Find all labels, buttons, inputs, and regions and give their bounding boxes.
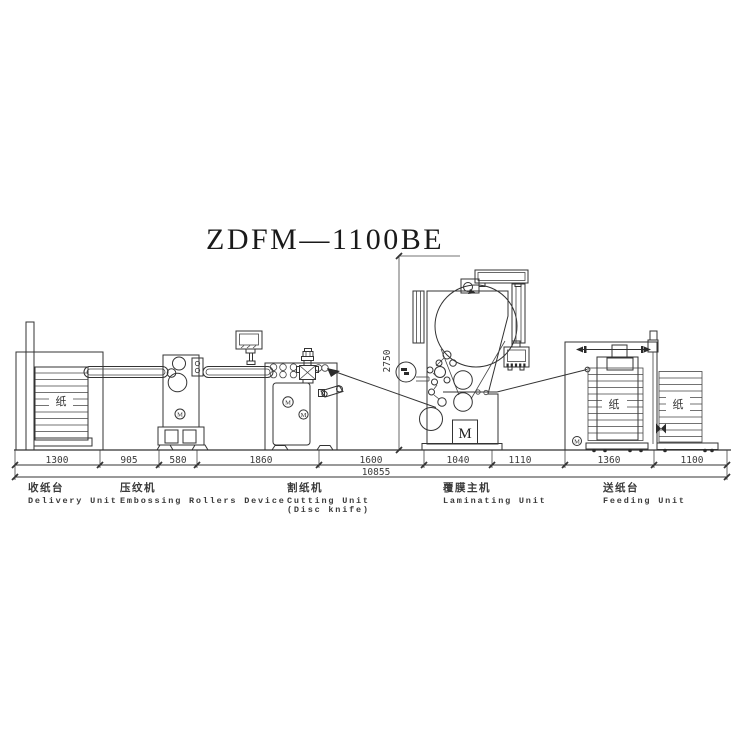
unit-labels: 收纸台 Delivery Unit 压纹机 Embossing Rollers …	[28, 481, 686, 515]
dim-cutting: 1860	[250, 455, 273, 466]
paper-label-feeder-1: 纸	[609, 398, 620, 411]
control-panel-2	[504, 347, 529, 370]
laminator-body	[427, 291, 508, 444]
sheet-path-lines	[333, 367, 590, 407]
monitor-1-screen	[240, 334, 259, 345]
label-cutting-zh: 割纸机	[287, 481, 323, 494]
label-feeding-zh: 送纸台	[602, 481, 639, 494]
label-laminating-en: Laminating Unit	[443, 496, 547, 506]
label-feeding-en: Feeding Unit	[603, 496, 686, 506]
motor-label-cutting-1: M	[285, 400, 291, 407]
label-delivery-en: Delivery Unit	[28, 496, 118, 506]
label-cutting-en2: (Disc knife)	[287, 505, 370, 515]
feeder-paper-stack-1: 纸	[586, 357, 648, 452]
dimension-band: 1300 905 580 1860 1600 1040 1110 1360 11…	[12, 450, 731, 480]
delivery-mast	[26, 322, 34, 450]
dim-delivery: 1300	[46, 455, 69, 466]
cutting-body	[265, 363, 337, 450]
cutting-unit: M M	[265, 349, 343, 451]
clamp-symbol	[656, 424, 661, 434]
nip-roller-lower	[454, 393, 473, 412]
rewind-roller	[420, 408, 443, 431]
dim-gap-3: 1110	[509, 455, 532, 466]
embossing-unit: M	[157, 355, 208, 450]
feeding-unit: 纸 M 纸	[565, 331, 718, 452]
diagram-title: ZDFM—1100BE	[206, 223, 444, 256]
control-panel-1	[236, 331, 262, 365]
laminating-drum	[435, 285, 517, 367]
dim-gap-2: 1600	[360, 455, 383, 466]
delivery-base	[34, 438, 92, 446]
film-gantry	[475, 270, 528, 347]
conveyor-bar-2	[203, 367, 273, 378]
web-line-cutter	[333, 371, 436, 408]
label-embossing-en: Embossing Rollers Device	[120, 496, 286, 506]
motor-label-laminating: M	[458, 426, 471, 442]
paper-label-delivery: 纸	[56, 395, 67, 408]
label-delivery-zh: 收纸台	[28, 481, 64, 494]
delivery-unit: 纸	[16, 322, 103, 450]
dim-gap-1: 905	[120, 455, 137, 466]
conveyor-bars	[84, 367, 273, 378]
nip-roller-upper	[454, 371, 473, 390]
laminator-ladder	[413, 291, 424, 343]
monitor-2-screen	[508, 350, 526, 362]
side-pump-unit	[396, 362, 429, 382]
disc-knife-assembly	[297, 349, 319, 384]
motor-label-feeding: M	[574, 439, 580, 446]
dim-feeding: 1360	[598, 455, 621, 466]
height-dimension: 2750	[382, 253, 460, 453]
label-laminating-zh: 覆膜主机	[443, 481, 491, 494]
film-roll-mount	[461, 279, 479, 294]
diagram-svg: ZDFM—1100BE 1300 905 580 1860	[0, 0, 750, 750]
machine-layout-diagram: ZDFM—1100BE 1300 905 580 1860	[0, 0, 750, 750]
motor-label-embossing: M	[177, 412, 183, 419]
embossing-roller-main	[168, 373, 187, 392]
motor-label-cutting-2: M	[301, 412, 307, 419]
laminating-unit: M	[396, 270, 528, 450]
conveyor-bar-1	[84, 367, 168, 378]
dim-total: 10855	[362, 467, 391, 478]
feeder-paper-stack-2: 纸	[656, 372, 718, 453]
swing-arm	[319, 386, 344, 398]
dim-height: 2750	[382, 349, 393, 372]
label-embossing-zh: 压纹机	[120, 481, 156, 494]
embossing-roller-top	[173, 357, 186, 370]
paper-label-feeder-2: 纸	[673, 398, 684, 411]
dim-laminating: 1040	[447, 455, 470, 466]
dim-embossing: 580	[169, 455, 186, 466]
dim-stack: 1100	[681, 455, 704, 466]
feed-board-line	[497, 370, 587, 393]
